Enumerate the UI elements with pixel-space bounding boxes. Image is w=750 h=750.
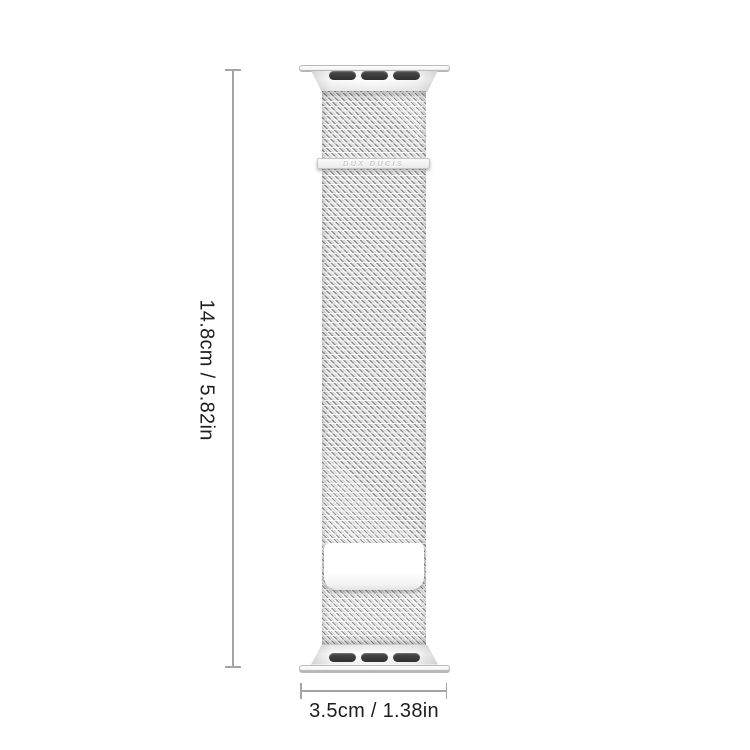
lug-slot [361,653,388,662]
height-dimension-cap-bottom [225,666,241,668]
height-dimension-label: 14.8cm / 5.82in [195,299,218,440]
product-dimension-diagram: 14.8cm / 5.82in 3.5cm / 1.38in DUX DUCIS [0,0,750,750]
brand-logo-text: DUX DUCIS [343,160,404,168]
bottom-connector-rail [299,665,450,671]
top-lug-adapter [311,71,438,93]
bottom-lug-adapter [311,645,438,665]
lug-slot [393,71,420,80]
width-dimension-cap-right [446,683,448,699]
top-connector-rail [299,65,450,71]
lug-slot [329,653,356,662]
height-dimension-cap-top [225,69,241,71]
height-dimension-line [232,69,234,667]
width-dimension-cap-left [300,683,302,699]
width-dimension-label: 3.5cm / 1.38in [294,700,454,723]
width-dimension-line [300,690,447,692]
lug-slot [329,71,356,80]
lug-slot [361,71,388,80]
brand-clasp-slider: DUX DUCIS [317,158,430,169]
magnetic-buckle [324,543,424,591]
lug-slot [393,653,420,662]
